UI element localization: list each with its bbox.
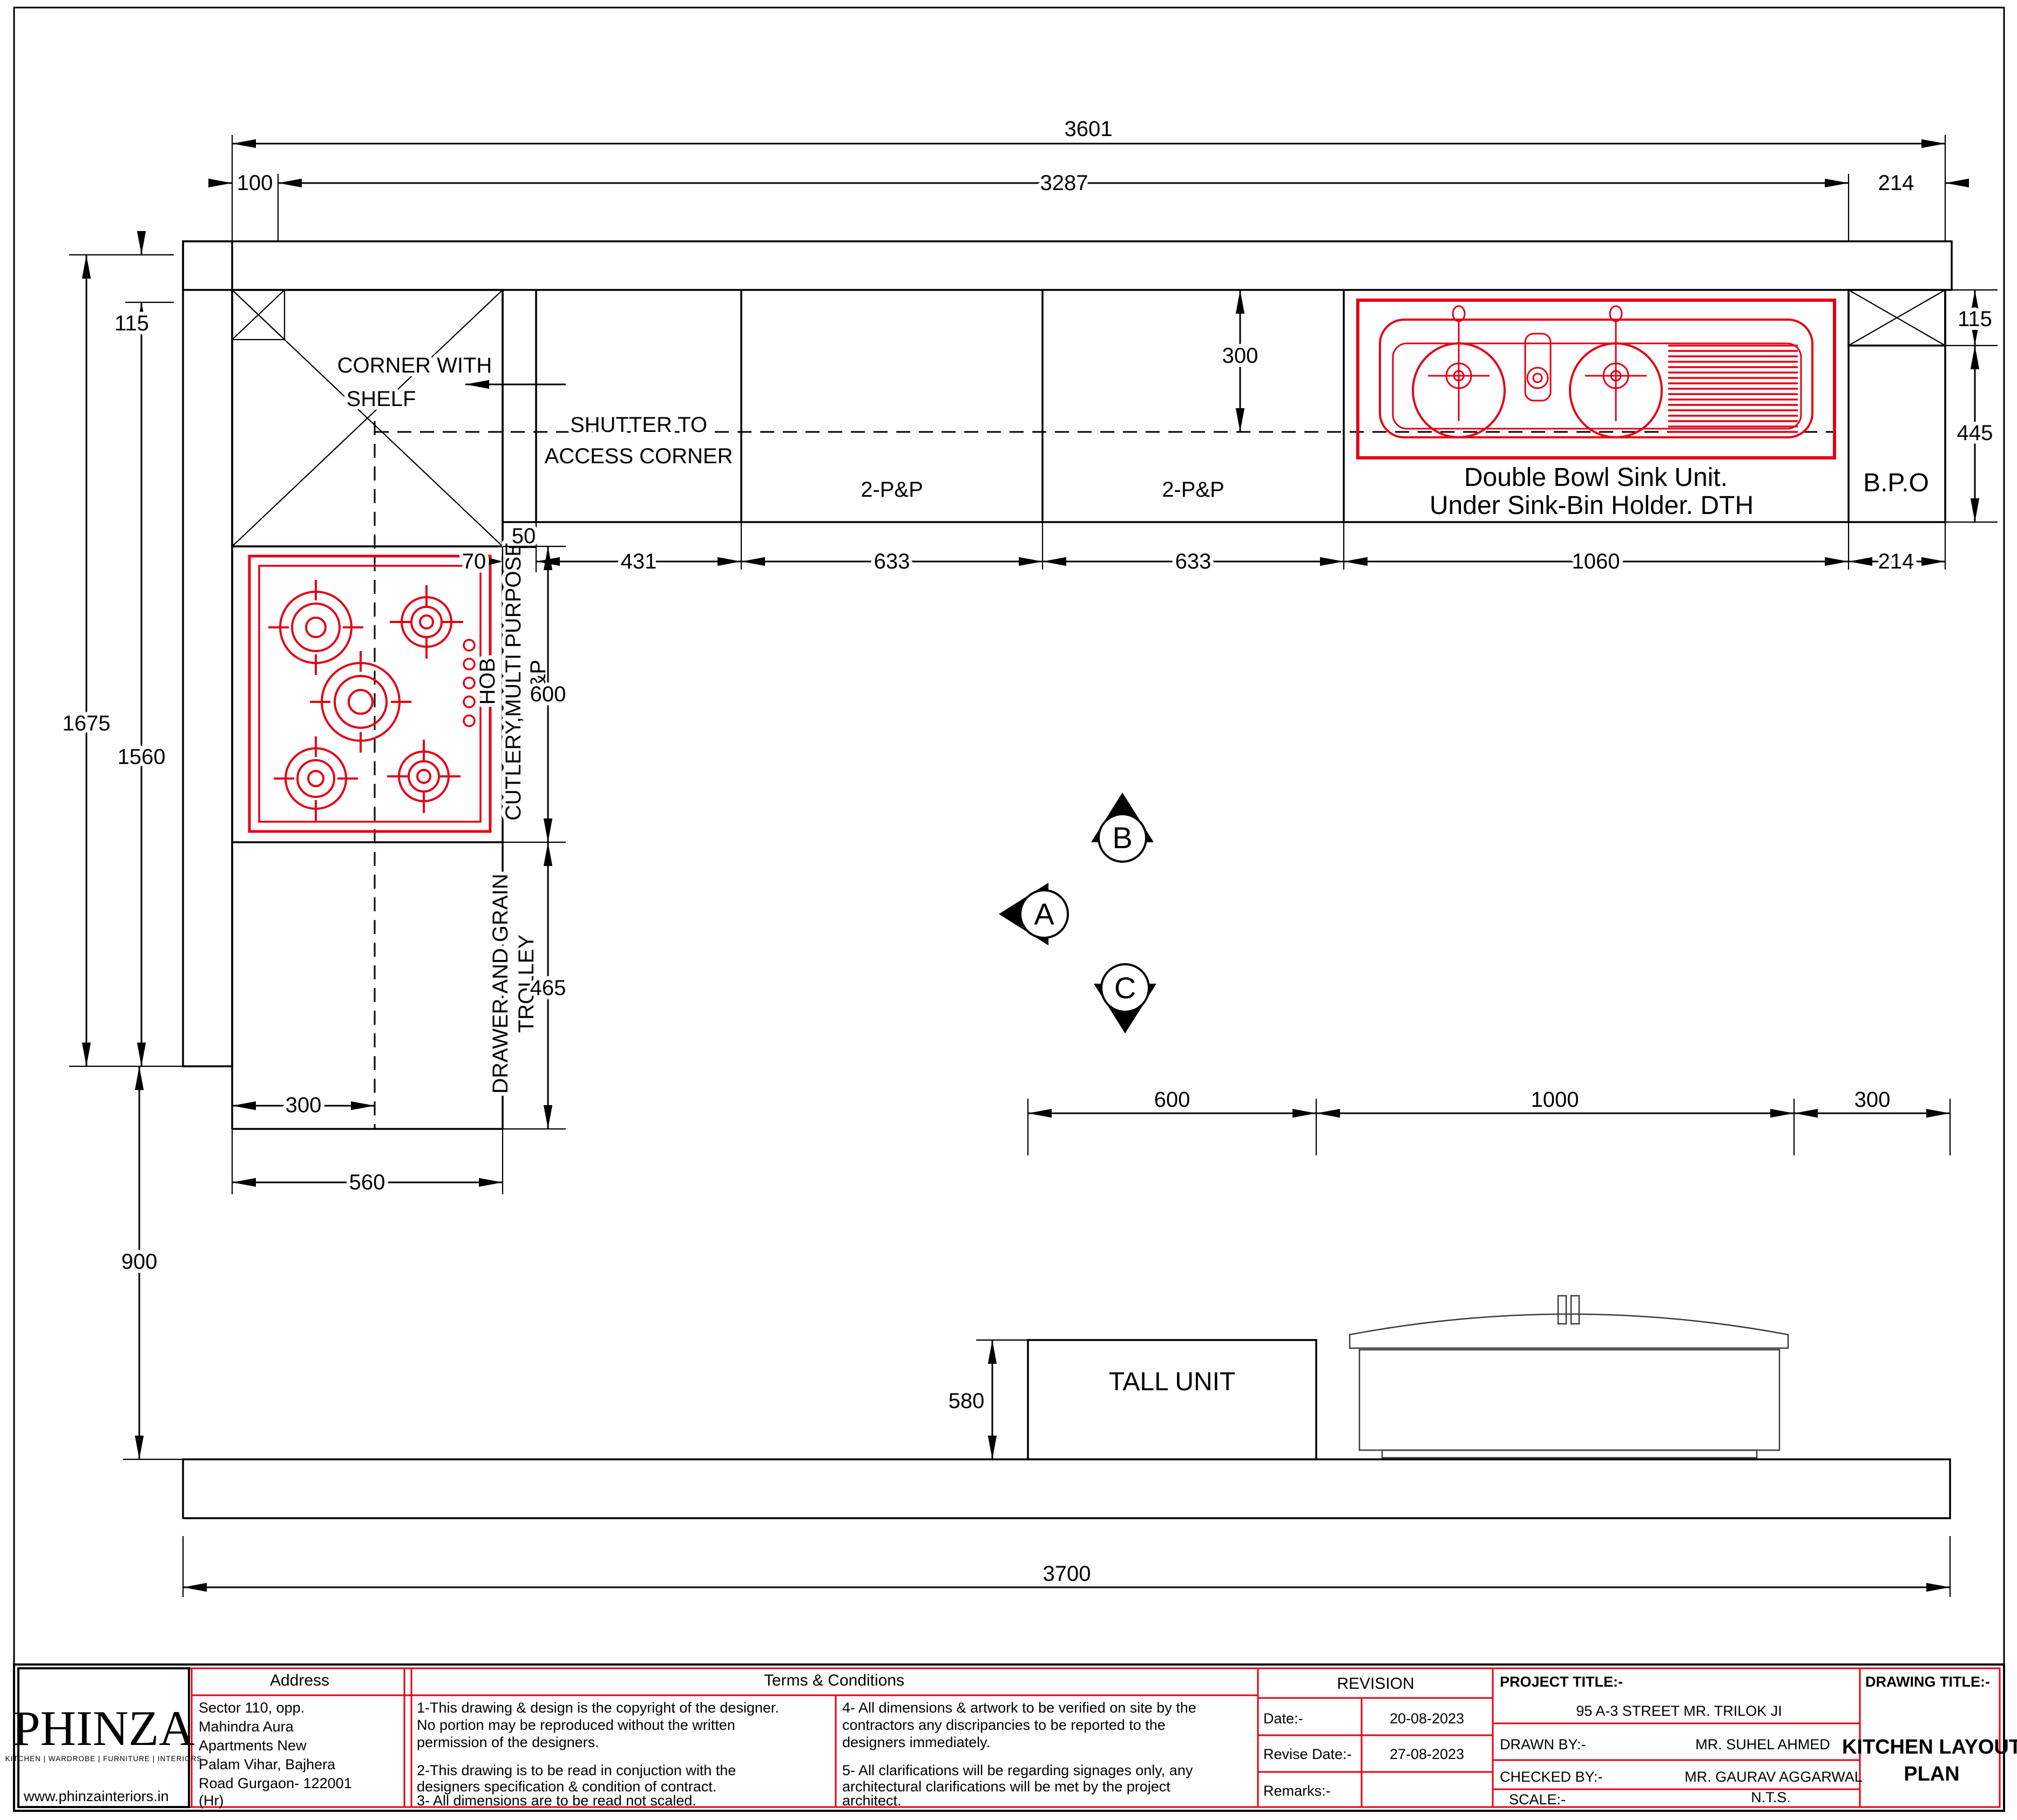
address-line-4: Palam Vihar, Bajhera [199, 1756, 336, 1772]
dim-top-left: 100 [237, 171, 273, 195]
terms-4b: contractors any discripancies to be repo… [842, 1717, 1166, 1733]
terms-header: Terms & Conditions [764, 1672, 904, 1689]
date-value: 20-08-2023 [1390, 1710, 1464, 1727]
dim-bpo: 214 [1878, 550, 1914, 573]
dim-filler: 70 [462, 550, 486, 573]
address-header: Address [270, 1672, 329, 1689]
burner-top-right [390, 585, 463, 659]
double-bowl-sink [1358, 300, 1835, 458]
drawing-title-line2: PLAN [1904, 1763, 1959, 1785]
fridge-unit [1350, 1296, 1788, 1458]
revision-header: REVISION [1337, 1675, 1414, 1693]
hob-label-line1: HOB [476, 658, 499, 705]
date-label: Date:- [1263, 1710, 1303, 1727]
shutter-label-line2: ACCESS CORNER [545, 444, 733, 468]
fridge-hinge-left [1558, 1296, 1566, 1324]
terms-2a: 2-This drawing is to be read in conjucti… [417, 1762, 736, 1778]
address-line-5: Road Gurgaon- 122001 [199, 1775, 352, 1791]
fridge-hinge-right [1571, 1296, 1579, 1324]
revise-date-value: 27-08-2023 [1390, 1746, 1464, 1762]
burner-bottom-right [387, 740, 461, 813]
tall-unit-label: TALL UNIT [1109, 1368, 1236, 1396]
drawing-title-line1: KITCHEN LAYOUT [1842, 1736, 2017, 1758]
address-line-1: Sector 110, opp. [199, 1700, 304, 1716]
corner-label-line1: CORNER WITH [337, 354, 492, 377]
dim-fridge: 1000 [1531, 1088, 1579, 1112]
dim-left-outer: 1675 [63, 712, 111, 735]
wall-left [183, 241, 232, 1066]
dim-shutter: 431 [621, 550, 657, 573]
terms-4c: designers immediately. [842, 1734, 990, 1750]
remarks-label: Remarks:- [1263, 1783, 1331, 1799]
drawn-by-label: DRAWN BY:- [1500, 1736, 1586, 1753]
hob-label-line2: CUTLERY,MULTI PURPOSE [502, 542, 525, 821]
dim-trolley: 465 [530, 976, 566, 1000]
dim-overall-bottom: 3700 [1043, 1562, 1091, 1586]
terms-1b: No portion may be reproduced without the… [417, 1717, 735, 1733]
section-marker-b-label: B [1112, 821, 1132, 855]
scale-value: N.T.S. [1751, 1789, 1791, 1805]
checked-by-value: MR. GAURAV AGGARWAL [1684, 1769, 1863, 1785]
kitchen-layout-plan-sheet: A B C CORNER WITH SHELF SHUTTER TO ACCES… [0, 0, 2017, 1820]
dim-left-wall: 115 [114, 312, 149, 335]
terms-3: 3- All dimensions are to be read not sca… [417, 1792, 696, 1809]
dim-right-wall: 115 [1958, 307, 1992, 331]
burner-center [310, 651, 411, 753]
hob-control-dots [464, 640, 475, 726]
scale-label: SCALE:- [1509, 1791, 1566, 1808]
dim-sink: 1060 [1572, 550, 1620, 573]
dim-tall: 600 [1154, 1088, 1190, 1112]
dim-hob-offset: 300 [286, 1093, 322, 1117]
fridge-lid [1350, 1314, 1788, 1348]
website-link[interactable]: www.phinzainteriors.in [23, 1788, 169, 1804]
fridge-body [1359, 1350, 1779, 1450]
tall-unit [1028, 1340, 1316, 1459]
left-cabinet-column [232, 290, 503, 1129]
dim-sink-offset: 300 [1222, 344, 1258, 368]
section-marker-c-label: C [1114, 971, 1136, 1005]
wall-bottom [183, 1459, 1950, 1518]
section-marker-c: C [1094, 964, 1156, 1033]
burner-top-left [268, 580, 363, 675]
terms-4a: 4- All dimensions & artwork to be verifi… [842, 1700, 1196, 1716]
dim-right-depth: 445 [1957, 421, 1993, 445]
logo-tagline: KITCHEN | WARDROBE | FURNITURE | INTERIO… [5, 1755, 202, 1763]
terms-1a: 1-This drawing & design is the copyright… [417, 1700, 779, 1716]
dim-pp1: 633 [874, 550, 910, 573]
address-line-2: Mahindra Aura [199, 1718, 294, 1735]
dim-gap-right: 300 [1854, 1088, 1891, 1112]
pp-label-right: 2-P&P [1162, 478, 1224, 502]
drawn-by-value: MR. SUHEL AHMED [1695, 1736, 1830, 1753]
drawing-title-label: DRAWING TITLE:- [1865, 1674, 1990, 1690]
phinza-logo: PHINZA [12, 1701, 194, 1756]
dim-hob: 600 [530, 682, 566, 706]
section-marker-b: B [1091, 793, 1154, 862]
fridge-plinth [1382, 1450, 1757, 1458]
dim-top-right: 214 [1878, 171, 1914, 195]
plan-labels: CORNER WITH SHELF SHUTTER TO ACCESS CORN… [337, 354, 1929, 1396]
wall-top [183, 241, 1952, 290]
corner-label-line2: SHELF [347, 387, 416, 411]
burner-bottom-left [274, 736, 358, 821]
sink-label-line2: Under Sink-Bin Holder. DTH [1430, 491, 1754, 520]
dim-pp2: 633 [1175, 550, 1211, 573]
revise-date-label: Revise Date:- [1263, 1746, 1352, 1762]
hob-unit [249, 556, 490, 831]
dim-filler-top: 50 [512, 524, 536, 548]
project-title-value: 95 A-3 STREET MR. TRILOK JI [1576, 1703, 1782, 1719]
dim-top-mid: 3287 [1040, 171, 1088, 195]
pp-label-left: 2-P&P [861, 478, 923, 502]
dim-overall-top: 3601 [1065, 117, 1113, 141]
drainer-board [1668, 346, 1798, 432]
dim-left-run: 560 [349, 1171, 385, 1194]
terms-5c: architect. [842, 1792, 902, 1809]
bpo-label: B.P.O [1863, 469, 1929, 497]
shutter-label-line1: SHUTTER TO [570, 413, 707, 437]
terms-1c: permission of the designers. [417, 1734, 599, 1750]
address-line-6: (Hr) [199, 1792, 224, 1809]
right-end-box [1849, 290, 1945, 346]
project-title-label: PROJECT TITLE:- [1500, 1674, 1623, 1690]
dimensions: 3601 100 3287 214 1675 1560 115 900 115 … [63, 117, 1998, 1597]
dim-left-lower: 900 [121, 1250, 158, 1274]
corner-unit [232, 290, 503, 546]
title-block: PHINZA KITCHEN | WARDROBE | FURNITURE | … [5, 1665, 2017, 1811]
terms-5a: 5- All clarifications will be regarding … [842, 1762, 1193, 1778]
sink-label-line1: Double Bowl Sink Unit. [1464, 463, 1728, 492]
dim-left-inner: 1560 [118, 745, 166, 769]
checked-by-label: CHECKED BY:- [1500, 1769, 1603, 1785]
trolley-label-line1: DRAWER AND GRAIN [489, 874, 512, 1093]
section-marker-a-label: A [1034, 897, 1054, 931]
section-marker-a: A [999, 883, 1068, 945]
logo-cell: PHINZA KITCHEN | WARDROBE | FURNITURE | … [5, 1668, 202, 1807]
dim-tall-depth: 580 [949, 1389, 985, 1413]
address-line-3: Apartments New [199, 1737, 307, 1754]
